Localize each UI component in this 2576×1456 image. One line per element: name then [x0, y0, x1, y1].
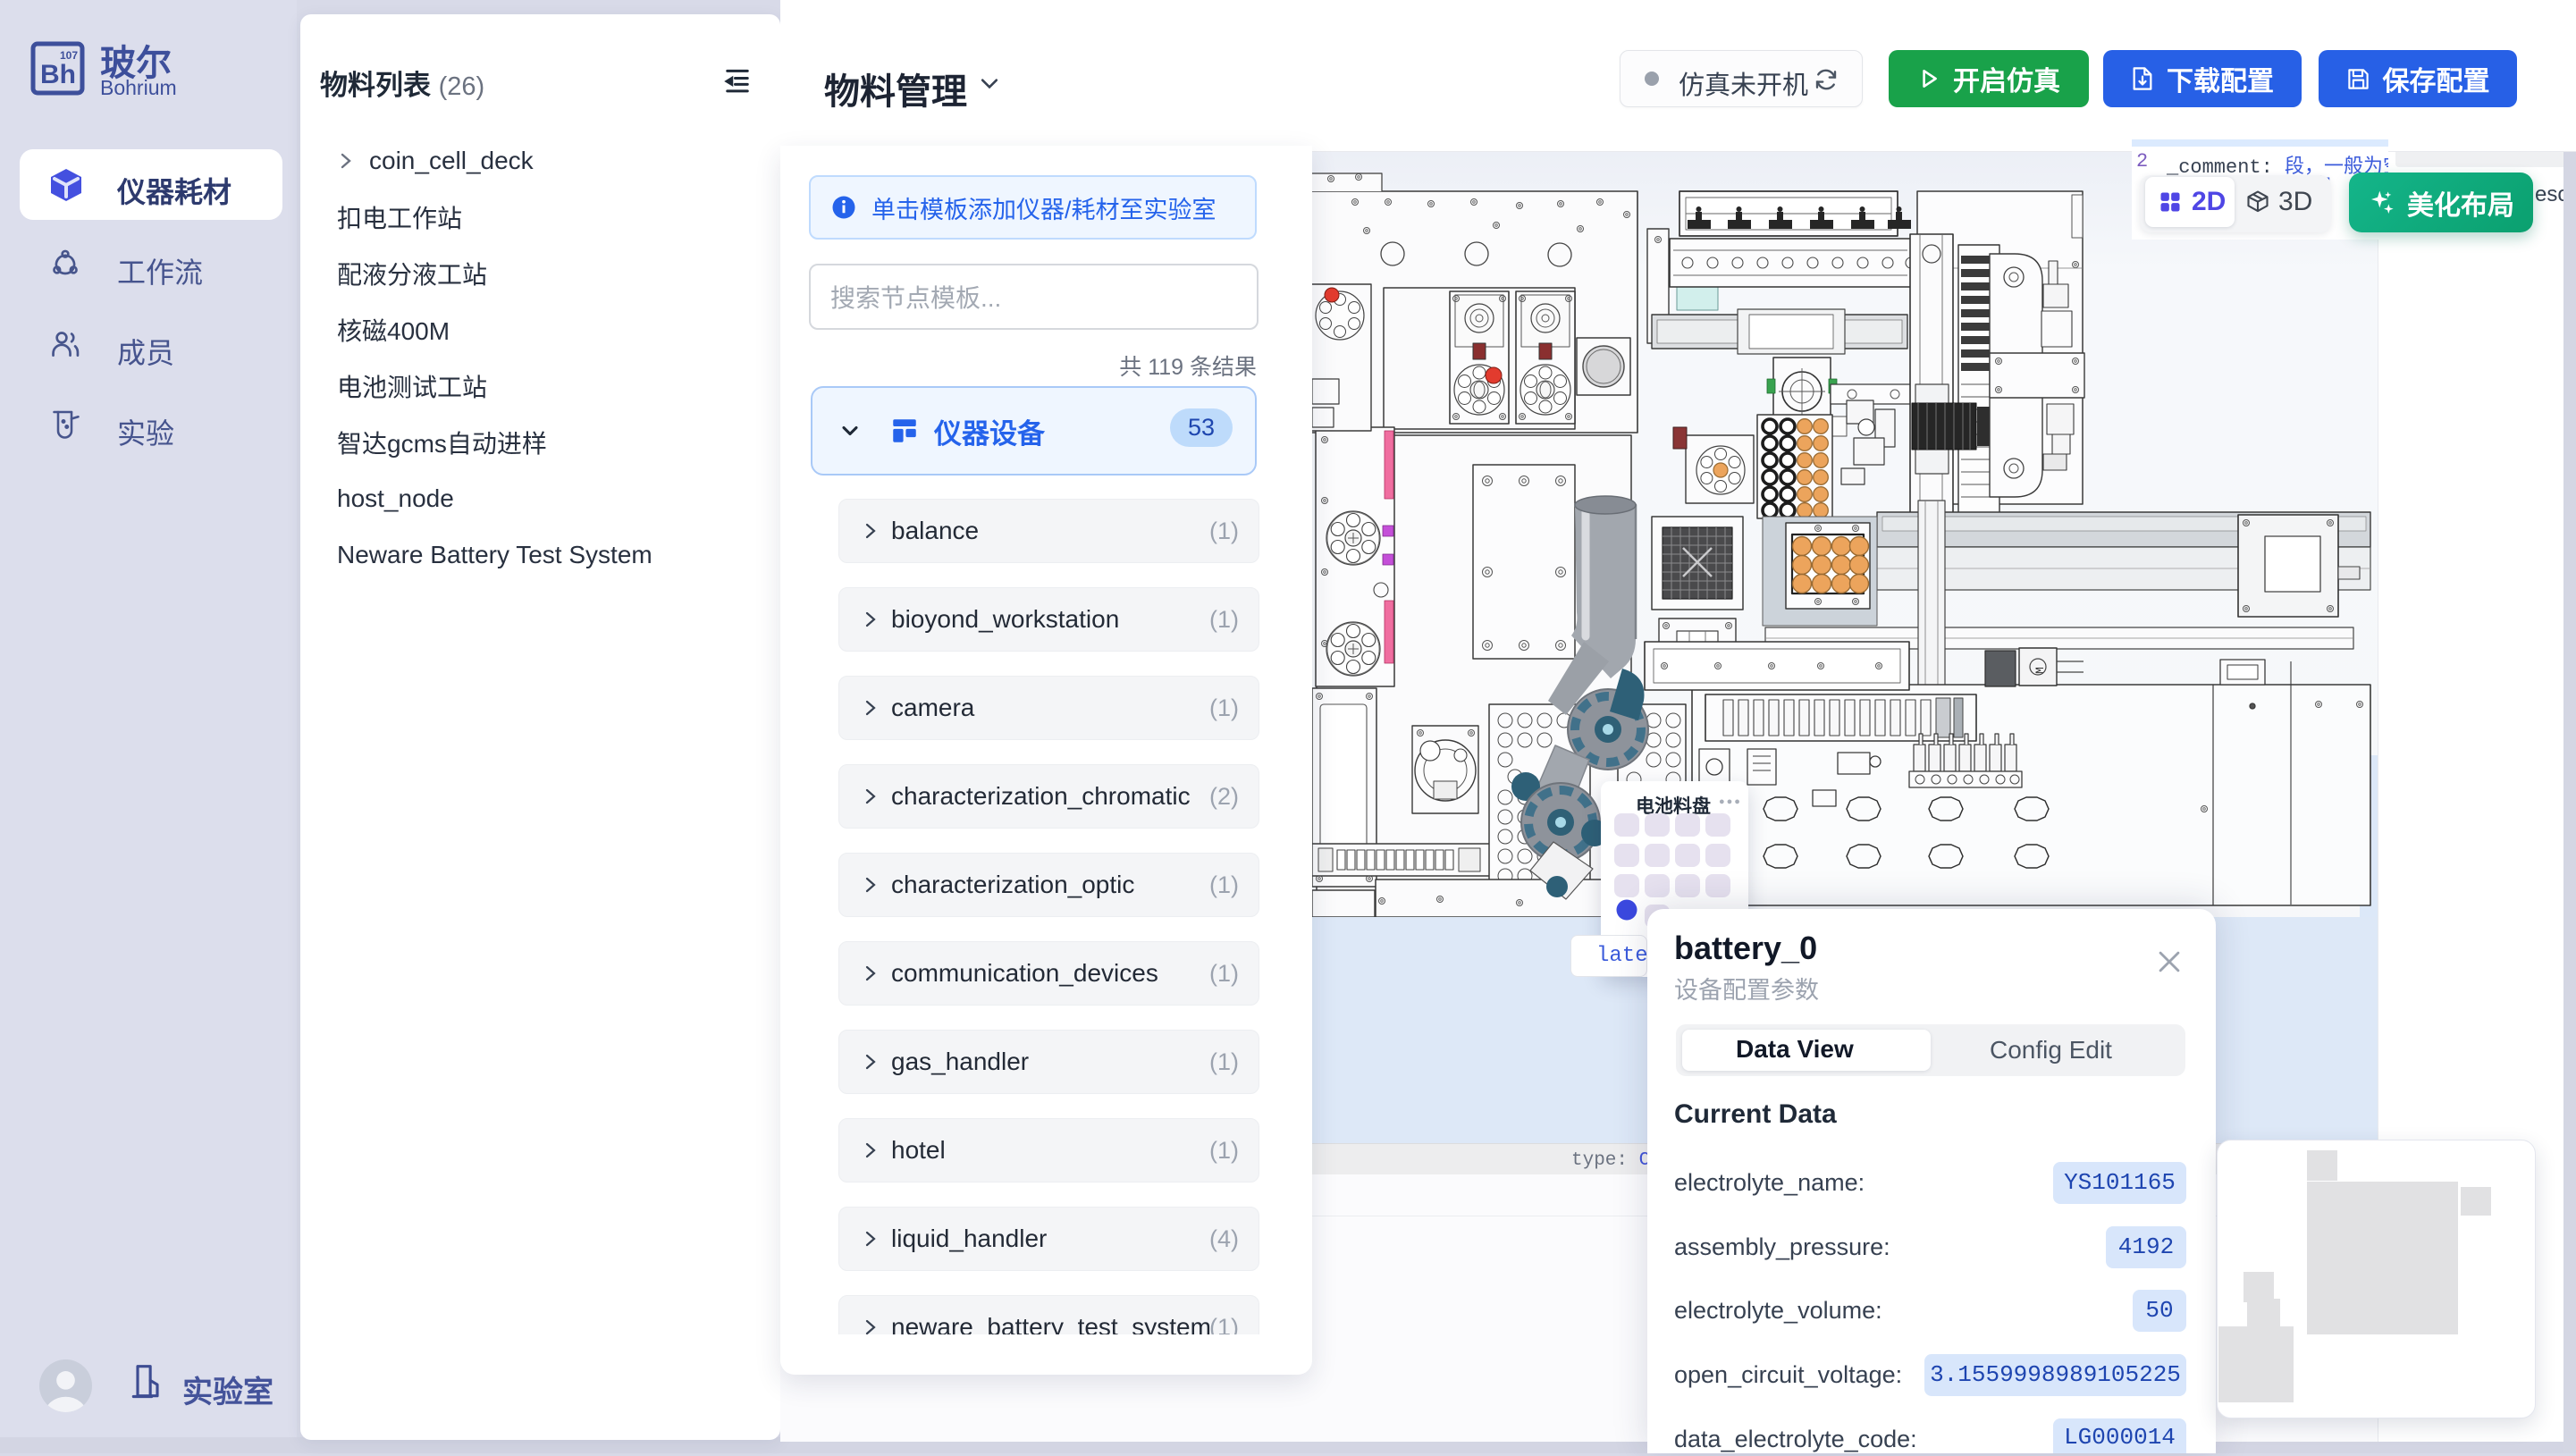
- svg-text:Bohrium: Bohrium: [100, 76, 177, 97]
- svg-text:M: M: [2033, 667, 2047, 674]
- svg-text:Bh: Bh: [40, 60, 76, 89]
- svg-text:107: 107: [60, 49, 78, 62]
